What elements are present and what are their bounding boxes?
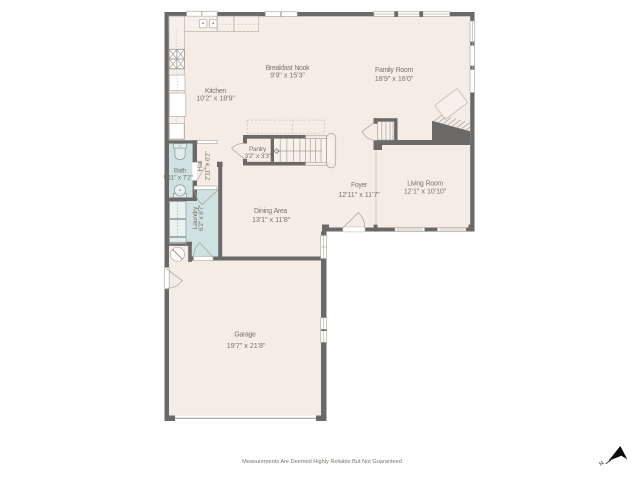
svg-text:Foyer: Foyer — [351, 182, 368, 189]
svg-text:12’1" x 10’10": 12’1" x 10’10" — [404, 187, 447, 196]
svg-text:Bath: Bath — [174, 167, 187, 174]
svg-text:6’2" x 8’7": 6’2" x 8’7" — [198, 204, 205, 231]
svg-text:Measurements Are Deemed Highly: Measurements Are Deemed Highly Reliable … — [242, 459, 402, 465]
svg-text:2’11" x 6’2": 2’11" x 6’2" — [205, 151, 212, 181]
svg-text:3’2" x 3’3": 3’2" x 3’3" — [244, 153, 271, 160]
svg-text:18’9" x 16’0": 18’9" x 16’0" — [375, 74, 414, 83]
svg-text:10’2" x 18’9": 10’2" x 18’9" — [196, 93, 235, 102]
svg-text:9’9" x 15’3": 9’9" x 15’3" — [270, 70, 305, 79]
svg-text:5’11" x 7’2": 5’11" x 7’2" — [164, 174, 194, 181]
svg-text:Pantry: Pantry — [249, 146, 267, 153]
svg-text:Garage: Garage — [234, 332, 256, 339]
svg-text:19’7" x 21’8": 19’7" x 21’8" — [227, 341, 266, 350]
svg-text:Hall: Hall — [197, 160, 204, 171]
svg-text:Family Room: Family Room — [375, 67, 413, 74]
svg-text:12’11" x 11’7": 12’11" x 11’7" — [338, 190, 380, 199]
svg-text:13’1" x 11’8": 13’1" x 11’8" — [252, 215, 291, 224]
